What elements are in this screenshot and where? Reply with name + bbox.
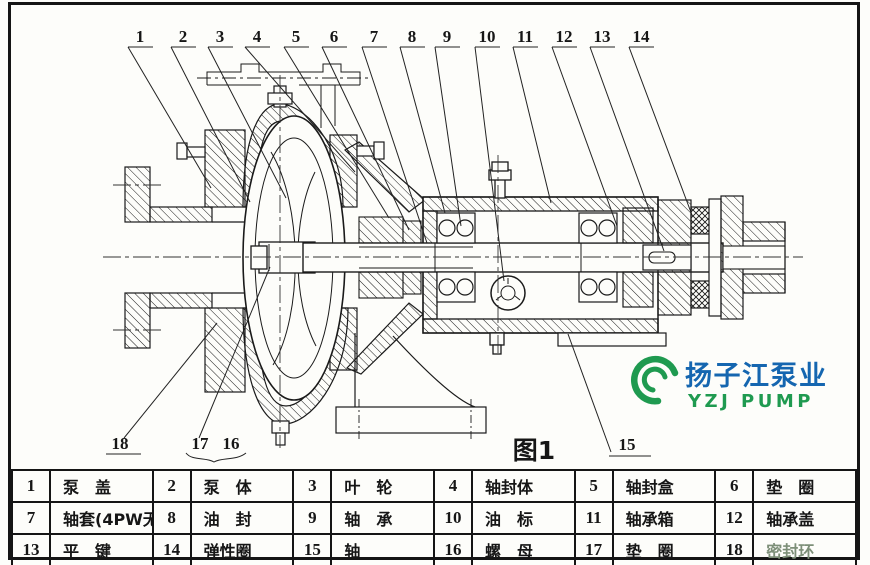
part-no: 10	[434, 502, 472, 534]
table-row: 13 平 键 14 弹性圈 15 轴 16 螺 母 17 垫 圈 18 密封环	[12, 534, 856, 565]
part-no: 4	[434, 470, 472, 502]
callout-12: 12	[556, 27, 573, 46]
part-name: 轴 承	[331, 502, 434, 534]
part-name: 平 键	[50, 534, 153, 565]
part-no: 1	[12, 470, 50, 502]
oil-gauge	[491, 276, 525, 310]
part-name: 垫 圈	[753, 470, 856, 502]
callout-1: 1	[136, 27, 145, 46]
company-logo: 扬子江泵业 YZJ PUMP	[634, 359, 827, 412]
part-name: 弹性圈	[191, 534, 294, 565]
part-name: 油 封	[191, 502, 294, 534]
callout-7: 7	[370, 27, 379, 46]
part-no: 11	[575, 502, 613, 534]
part-name: 轴封体	[472, 470, 575, 502]
callout-13: 13	[594, 27, 611, 46]
part-name: 油 标	[472, 502, 575, 534]
part-name: 轴承盖	[753, 502, 856, 534]
coupling	[643, 196, 785, 319]
part-no: 3	[293, 470, 331, 502]
part-no: 5	[575, 470, 613, 502]
part-name: 轴	[331, 534, 434, 565]
callout-10: 10	[479, 27, 496, 46]
part-no: 15	[293, 534, 331, 565]
part-name: 轴封盒	[613, 470, 716, 502]
part-name: 螺 母	[472, 534, 575, 565]
part-no: 6	[715, 470, 753, 502]
part-no: 14	[153, 534, 191, 565]
drawing-frame: 1 2 3 4 5 6 7 8 9 10 11 12 13 14 18 17 1…	[8, 2, 860, 560]
callout-8: 8	[408, 27, 417, 46]
callout-5: 5	[292, 27, 301, 46]
part-no: 13	[12, 534, 50, 565]
callout-3: 3	[216, 27, 225, 46]
callout-17: 17	[192, 434, 210, 453]
callout-6: 6	[330, 27, 339, 46]
scanned-pump-drawing-page: 1 2 3 4 5 6 7 8 9 10 11 12 13 14 18 17 1…	[0, 0, 870, 565]
callout-9: 9	[443, 27, 452, 46]
callout-16: 16	[223, 434, 240, 453]
parts-table: 1 泵 盖 2 泵 体 3 叶 轮 4 轴封体 5 轴封盒 6 垫 圈 7 轴套…	[11, 469, 857, 565]
logo-swirl-inner-icon	[644, 369, 665, 390]
part-no: 8	[153, 502, 191, 534]
table-row: 7 轴套(4PW无) 8 油 封 9 轴 承 10 油 标 11 轴承箱 12 …	[12, 502, 856, 534]
logo-swirl-icon	[634, 359, 675, 401]
part-no: 7	[12, 502, 50, 534]
callout-18: 18	[112, 434, 129, 453]
part-name: 泵 体	[191, 470, 294, 502]
part-no: 12	[715, 502, 753, 534]
pump-cross-section-diagram: 1 2 3 4 5 6 7 8 9 10 11 12 13 14 18 17 1…	[11, 5, 857, 469]
callout-4: 4	[253, 27, 262, 46]
part-no: 9	[293, 502, 331, 534]
part-no: 2	[153, 470, 191, 502]
logo-english-name: YZJ PUMP	[687, 391, 814, 412]
part-no: 17	[575, 534, 613, 565]
part-name: 叶 轮	[331, 470, 434, 502]
part-name: 轴承箱	[613, 502, 716, 534]
figure-label: 图1	[513, 436, 555, 465]
part-name: 泵 盖	[50, 470, 153, 502]
logo-chinese-name: 扬子江泵业	[685, 361, 828, 392]
callout-2: 2	[179, 27, 188, 46]
callout-11: 11	[517, 27, 533, 46]
part-name: 密封环	[753, 534, 856, 565]
part-name: 垫 圈	[613, 534, 716, 565]
part-no: 16	[434, 534, 472, 565]
part-no: 18	[715, 534, 753, 565]
callout-15: 15	[619, 435, 636, 454]
table-row: 1 泵 盖 2 泵 体 3 叶 轮 4 轴封体 5 轴封盒 6 垫 圈	[12, 470, 856, 502]
part-name: 轴套(4PW无)	[50, 502, 153, 534]
callout-14: 14	[633, 27, 651, 46]
